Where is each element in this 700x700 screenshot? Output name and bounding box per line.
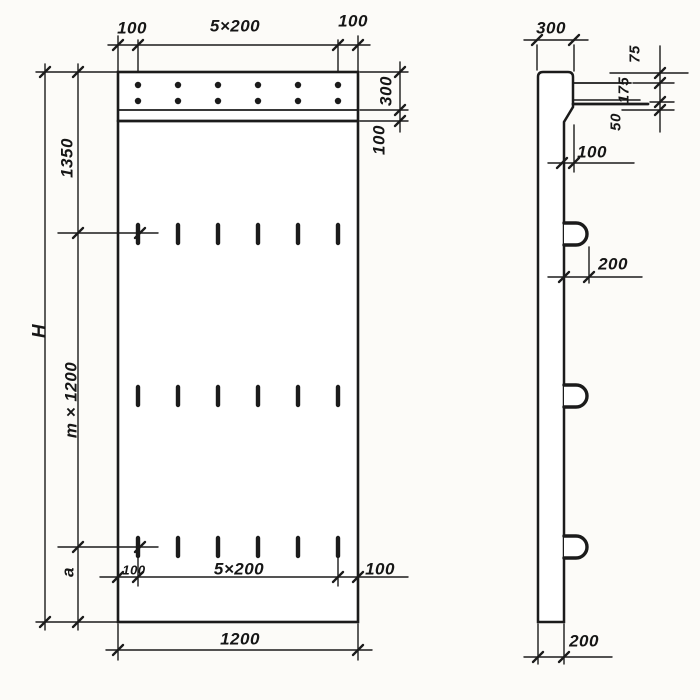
dim-front-slot-spacing: 5×200 [214,561,264,578]
dim-front-top-right: 100 [338,13,368,30]
dim-side-edge-top: 75 [628,45,643,63]
dim-side-top-width: 300 [536,20,566,37]
dim-side-edge-bottom: 50 [609,113,624,131]
dim-front-height-top: 1350 [59,138,76,178]
dim-side-step: 100 [577,144,607,161]
dim-front-top-left: 100 [117,20,147,37]
dim-side-bottom-width: 200 [569,633,599,650]
dim-front-slot-right: 100 [365,561,395,578]
dim-front-slot-left: 100 [122,564,145,577]
dim-front-height-middle: m × 1200 [63,362,80,438]
dim-front-height-bottom: a [60,567,77,577]
drawing-sheet: 100 5×200 100 300 100 1350 m × 1200 a H … [0,0,700,700]
dim-front-overall-width: 1200 [220,631,260,648]
front-view-panel-outline [118,72,358,622]
dim-front-band-height: 300 [378,76,395,106]
dim-front-overall-height: H [31,324,50,338]
dim-side-loop-projection: 200 [598,256,628,273]
dim-side-edge-middle: 175 [617,77,632,104]
dim-front-top-spacing: 5×200 [210,18,260,35]
dim-front-band-offset: 100 [371,125,388,155]
drawing-canvas [0,0,700,700]
